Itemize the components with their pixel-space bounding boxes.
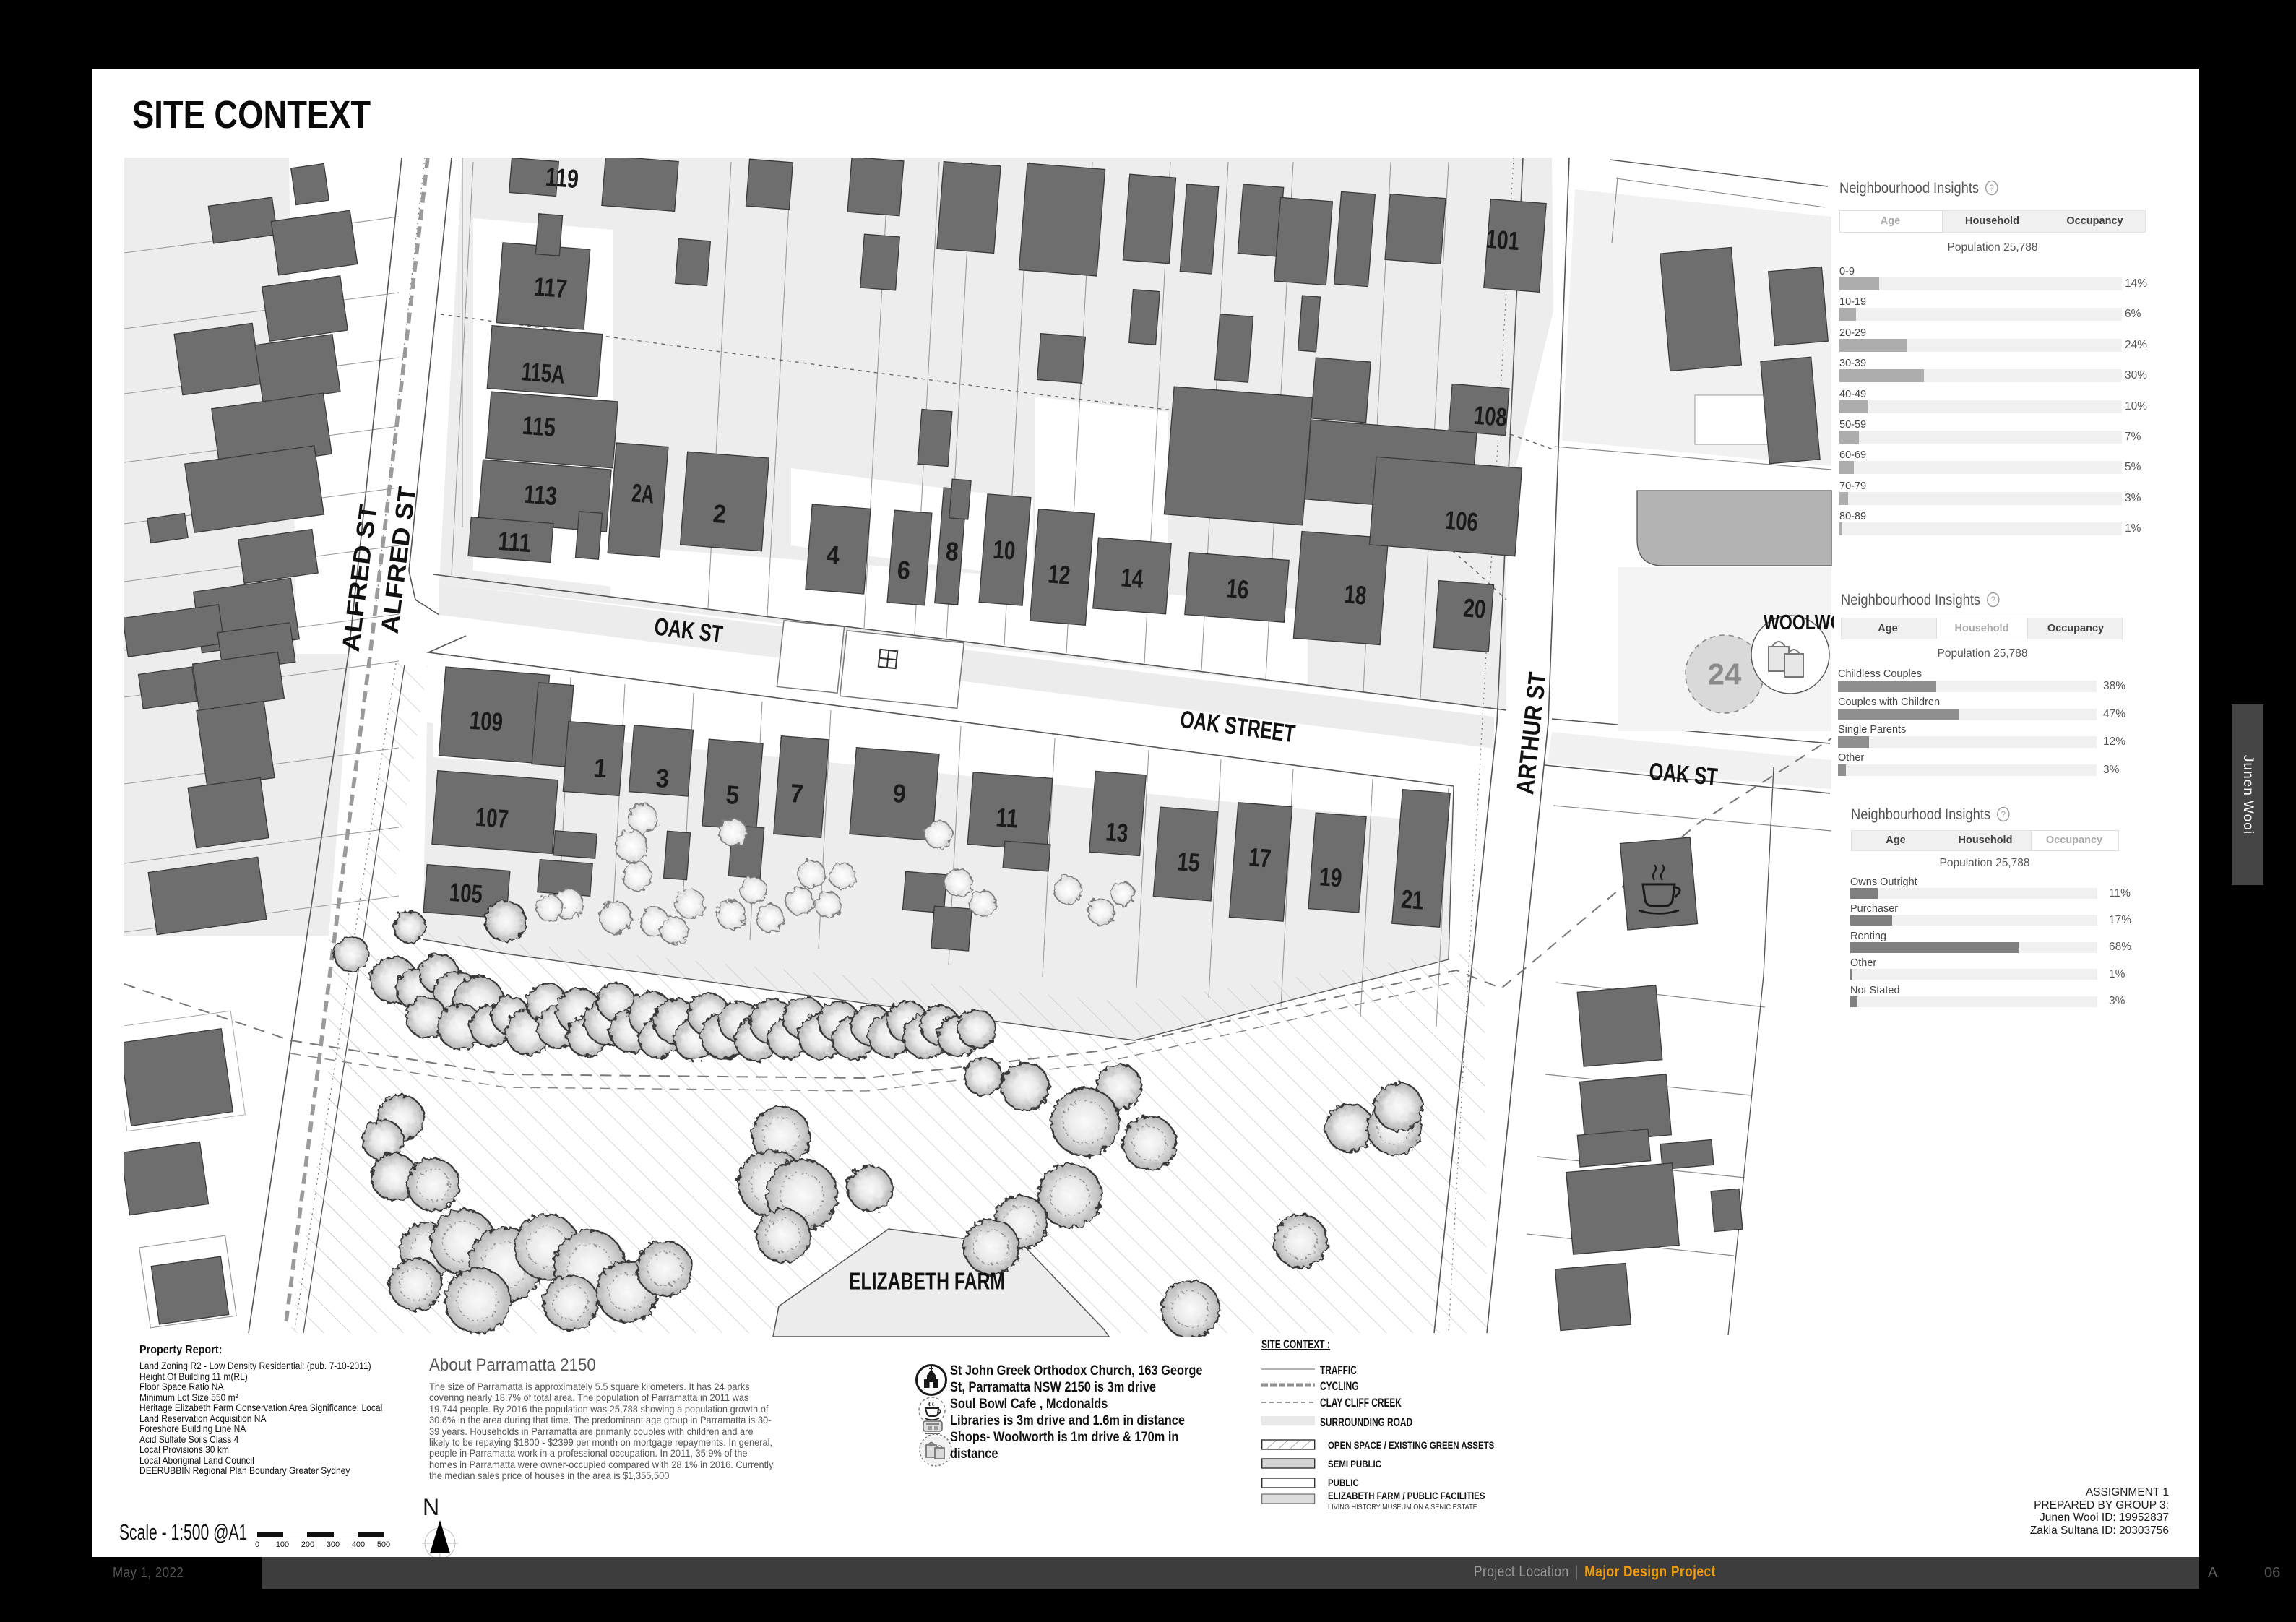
svg-text:107: 107 (474, 802, 509, 834)
svg-text:4: 4 (825, 540, 840, 570)
svg-text:117: 117 (532, 272, 568, 303)
svg-text:ELIZABETH FARM: ELIZABETH FARM (849, 1268, 1005, 1295)
svg-text:115: 115 (521, 410, 556, 442)
svg-text:18: 18 (1343, 579, 1368, 610)
svg-text:?: ? (2001, 809, 2006, 820)
svg-text:14: 14 (1120, 562, 1144, 593)
svg-text:13: 13 (1105, 816, 1129, 847)
svg-text:108: 108 (1472, 400, 1508, 432)
svg-text:15: 15 (1176, 846, 1201, 877)
svg-text:?: ? (1990, 183, 1994, 194)
svg-text:109: 109 (468, 705, 504, 737)
svg-text:113: 113 (522, 479, 558, 511)
svg-text:24: 24 (1708, 657, 1742, 691)
svg-text:6: 6 (896, 555, 911, 585)
svg-text:?: ? (1991, 595, 1995, 605)
svg-text:12: 12 (1047, 558, 1071, 590)
svg-text:10: 10 (992, 534, 1017, 565)
svg-text:1: 1 (592, 753, 608, 783)
svg-text:111: 111 (496, 526, 532, 558)
svg-text:OAK ST: OAK ST (1648, 758, 1719, 791)
svg-text:115A: 115A (520, 356, 566, 389)
svg-text:16: 16 (1225, 573, 1250, 604)
svg-text:WOOLWORTH: WOOLWORTH (1764, 611, 1834, 634)
svg-text:21: 21 (1400, 884, 1425, 915)
svg-text:9: 9 (892, 778, 907, 808)
svg-text:7: 7 (789, 778, 804, 808)
svg-text:119: 119 (544, 162, 579, 194)
svg-text:2A: 2A (631, 478, 655, 509)
svg-text:11: 11 (995, 802, 1019, 833)
svg-text:2: 2 (712, 499, 727, 529)
svg-text:8: 8 (944, 536, 959, 566)
svg-text:5: 5 (725, 780, 740, 810)
svg-text:19: 19 (1319, 861, 1343, 892)
svg-text:20: 20 (1462, 592, 1487, 624)
svg-text:106: 106 (1443, 505, 1479, 537)
svg-text:ARTHUR ST: ARTHUR ST (1511, 670, 1552, 795)
svg-text:101: 101 (1485, 224, 1520, 256)
svg-text:3: 3 (655, 763, 670, 793)
svg-text:105: 105 (448, 877, 483, 909)
svg-text:17: 17 (1248, 842, 1272, 873)
